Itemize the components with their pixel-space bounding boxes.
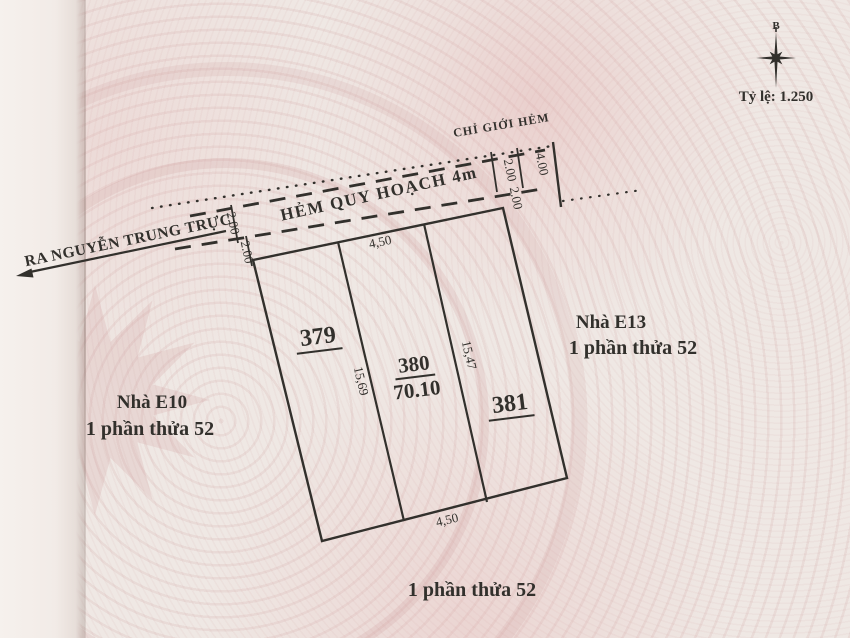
dim-380-rear: 4,50 [434,510,460,530]
parcel-381-group: 381 [486,388,535,420]
compass-rose: B [756,20,796,88]
north-arrow-star [756,32,796,88]
label-parcel52-right: 1 phần thửa 52 [569,337,697,359]
dim-tick-right-long [553,142,561,207]
parcel-380-area: 70.10 [392,375,442,405]
street-arrow-head [16,269,34,278]
cadastral-sketch-page: 2.00 2.00 2.00 4.00 2.00 HẺM QUY HOẠCH 4… [0,0,850,638]
label-house-e10: Nhà E10 [117,392,187,413]
dim-380-side-right: 15,47 [459,339,480,371]
label-parcel52-bottom: 1 phần thửa 52 [408,579,536,601]
dim-label-right-lower-2m: 2.00 [507,185,526,210]
label-house-e13: Nhà E13 [576,312,646,333]
survey-drawing: 2.00 2.00 2.00 4.00 2.00 HẺM QUY HOẠCH 4… [0,0,850,638]
alley-boundary-label: CHỈ GIỚI HẺM [452,110,550,140]
parcel-380-number: 380 [397,350,431,378]
dim-label-right-4m: 4.00 [533,151,552,176]
parcel-381-number: 381 [491,389,530,419]
parcel-379-number: 379 [299,322,338,352]
parcel-379-group: 379 [294,321,343,353]
label-parcel52-left: 1 phần thửa 52 [86,418,214,440]
alley-boundary-dotted-line-right [563,190,642,201]
scale-label: Tỷ lệ: 1.250 [739,89,814,105]
dim-label-right-2m: 2.00 [501,157,520,182]
street-name-label: RA NGUYỄN TRUNG TRỰC [23,210,233,270]
parcel-380-group: 380 70.10 [389,349,442,404]
